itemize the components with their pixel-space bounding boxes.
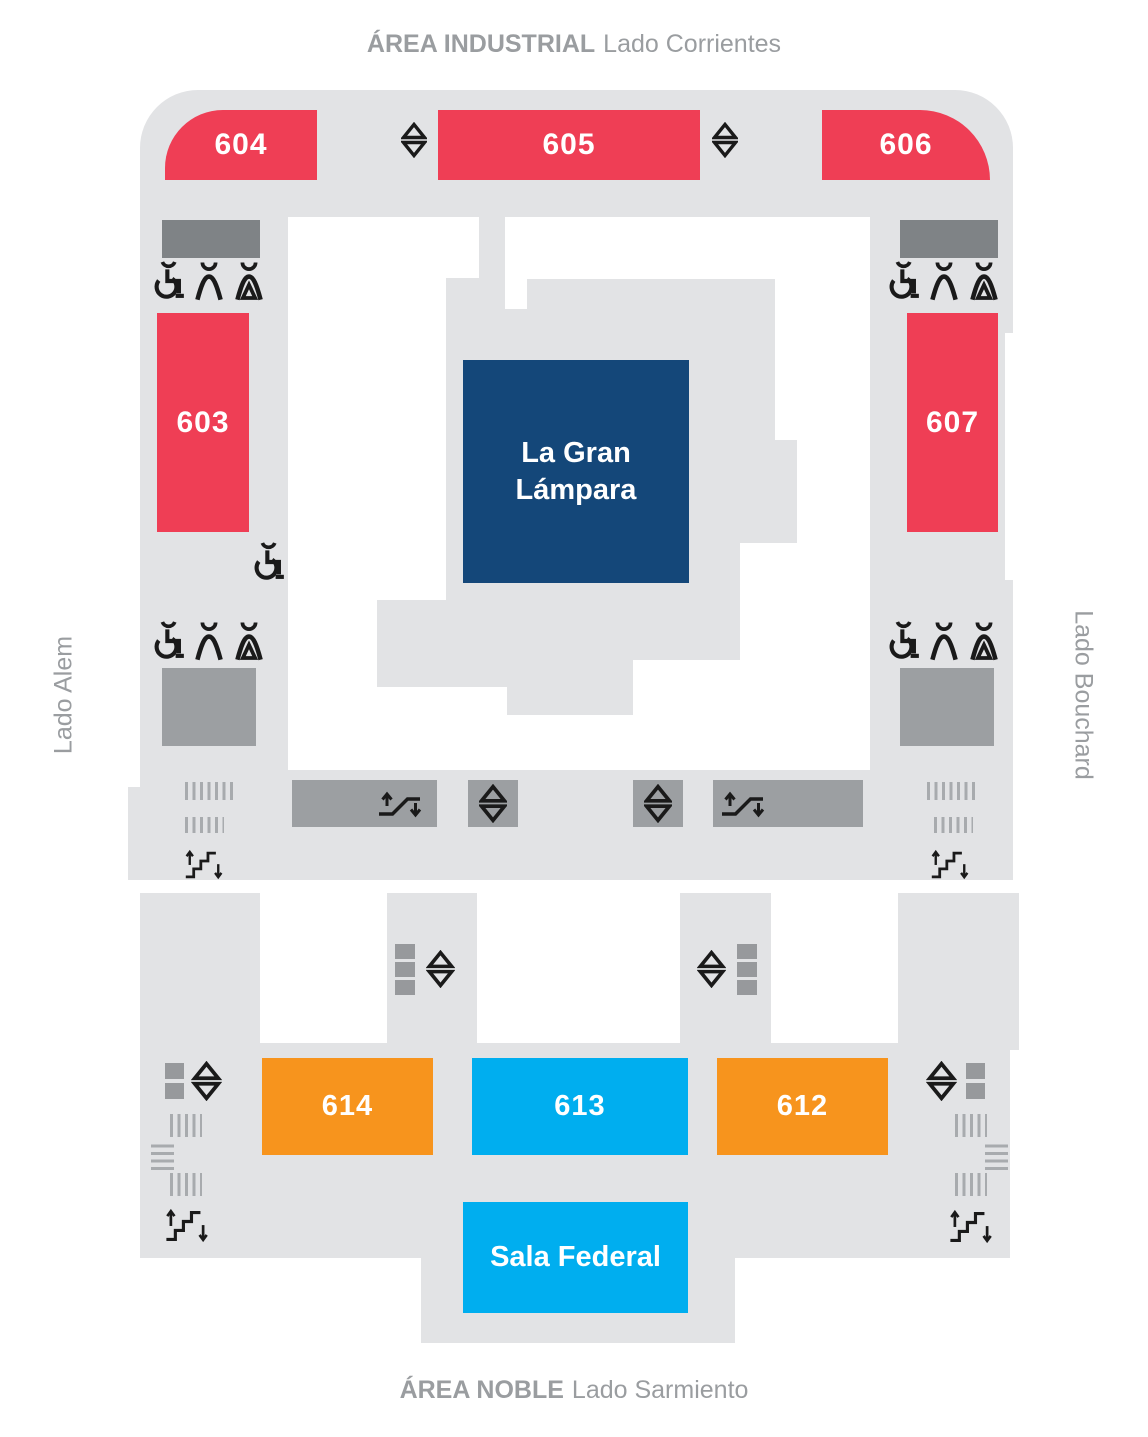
service-room xyxy=(900,668,994,746)
courtyard xyxy=(507,715,633,770)
courtyard xyxy=(775,217,870,440)
hatch-marks xyxy=(985,1140,1008,1170)
marker-square xyxy=(395,944,415,959)
courtyard xyxy=(377,278,446,600)
hall-sala-federal: Sala Federal xyxy=(463,1202,688,1313)
elevator-icon xyxy=(191,1061,222,1101)
mens-restroom-icon xyxy=(929,620,959,663)
marker-square xyxy=(165,1063,184,1079)
floor-plan: 604 605 606 603 607 La Gran Lámpara 614 … xyxy=(0,0,1148,1437)
hatch-marks xyxy=(185,782,236,800)
elevator-icon xyxy=(712,122,738,158)
elevator-icon xyxy=(926,1061,957,1101)
hatch-marks xyxy=(955,1173,987,1196)
room-614: 614 xyxy=(262,1058,433,1155)
upper-left-edge-step xyxy=(128,787,142,880)
accessible-restroom-icon xyxy=(885,619,923,663)
courtyard xyxy=(505,217,775,279)
lado-bouchard-label: Lado Bouchard xyxy=(1069,610,1098,780)
mens-restroom-icon xyxy=(194,260,224,303)
hatch-marks xyxy=(927,782,978,800)
mens-restroom-icon xyxy=(929,260,959,303)
lado-alem-label: Lado Alem xyxy=(50,636,79,754)
elevator-icon xyxy=(401,122,427,158)
service-room xyxy=(162,220,260,258)
lower-right-edge-step xyxy=(1010,893,1019,1050)
marker-square xyxy=(395,980,415,995)
hall-la-gran-lampara: La Gran Lámpara xyxy=(463,360,689,583)
room-603: 603 xyxy=(157,313,249,532)
courtyard xyxy=(505,279,527,309)
room-604: 604 xyxy=(165,110,317,180)
accessible-restroom-icon xyxy=(885,259,923,303)
marker-square xyxy=(966,1083,985,1099)
marker-square xyxy=(737,962,757,977)
stairs-icon xyxy=(946,1201,996,1244)
courtyard xyxy=(260,893,387,1043)
room-612: 612 xyxy=(717,1058,888,1155)
womens-restroom-icon xyxy=(234,620,264,663)
accessible-restroom-icon xyxy=(150,259,188,303)
marker-square xyxy=(737,944,757,959)
courtyard xyxy=(377,687,446,770)
marker-square xyxy=(737,980,757,995)
courtyard xyxy=(477,893,680,1043)
courtyard xyxy=(288,278,377,770)
accessible-restroom-icon xyxy=(150,619,188,663)
marker-square xyxy=(966,1063,985,1079)
courtyard xyxy=(740,543,870,770)
room-607: 607 xyxy=(907,313,998,532)
marker-square xyxy=(165,1083,184,1099)
room-605: 605 xyxy=(438,110,700,180)
hatch-marks xyxy=(170,1114,202,1137)
courtyard xyxy=(633,660,740,770)
section-gap xyxy=(128,880,1020,893)
stairs-icon xyxy=(928,842,972,880)
accessible-restroom-icon xyxy=(250,540,288,584)
courtyard xyxy=(288,217,479,278)
elevator-icon xyxy=(644,784,672,823)
area-noble-label: ÁREA NOBLELado Sarmiento xyxy=(0,1376,1148,1405)
hatch-marks xyxy=(170,1173,202,1196)
elevator-icon xyxy=(426,950,455,988)
courtyard xyxy=(797,440,870,543)
mens-restroom-icon xyxy=(194,620,224,663)
marker-square xyxy=(395,962,415,977)
wall-gap xyxy=(1005,333,1013,580)
womens-restroom-icon xyxy=(234,260,264,303)
hatch-marks xyxy=(934,817,973,833)
hatch-marks xyxy=(185,817,224,833)
room-613: 613 xyxy=(472,1058,688,1155)
hatch-marks xyxy=(151,1140,174,1170)
escalator-icon xyxy=(376,786,428,822)
service-room xyxy=(162,668,256,746)
elevator-icon xyxy=(479,784,507,823)
womens-restroom-icon xyxy=(969,620,999,663)
courtyard xyxy=(446,687,507,770)
area-industrial-label: ÁREA INDUSTRIALLado Corrientes xyxy=(0,30,1148,59)
elevator-icon xyxy=(697,950,726,988)
service-room xyxy=(900,220,998,258)
hatch-marks xyxy=(955,1114,987,1137)
escalator-icon xyxy=(719,786,771,822)
courtyard xyxy=(771,893,898,1043)
stairs-icon xyxy=(163,1200,211,1243)
stairs-icon xyxy=(182,842,226,880)
womens-restroom-icon xyxy=(969,260,999,303)
